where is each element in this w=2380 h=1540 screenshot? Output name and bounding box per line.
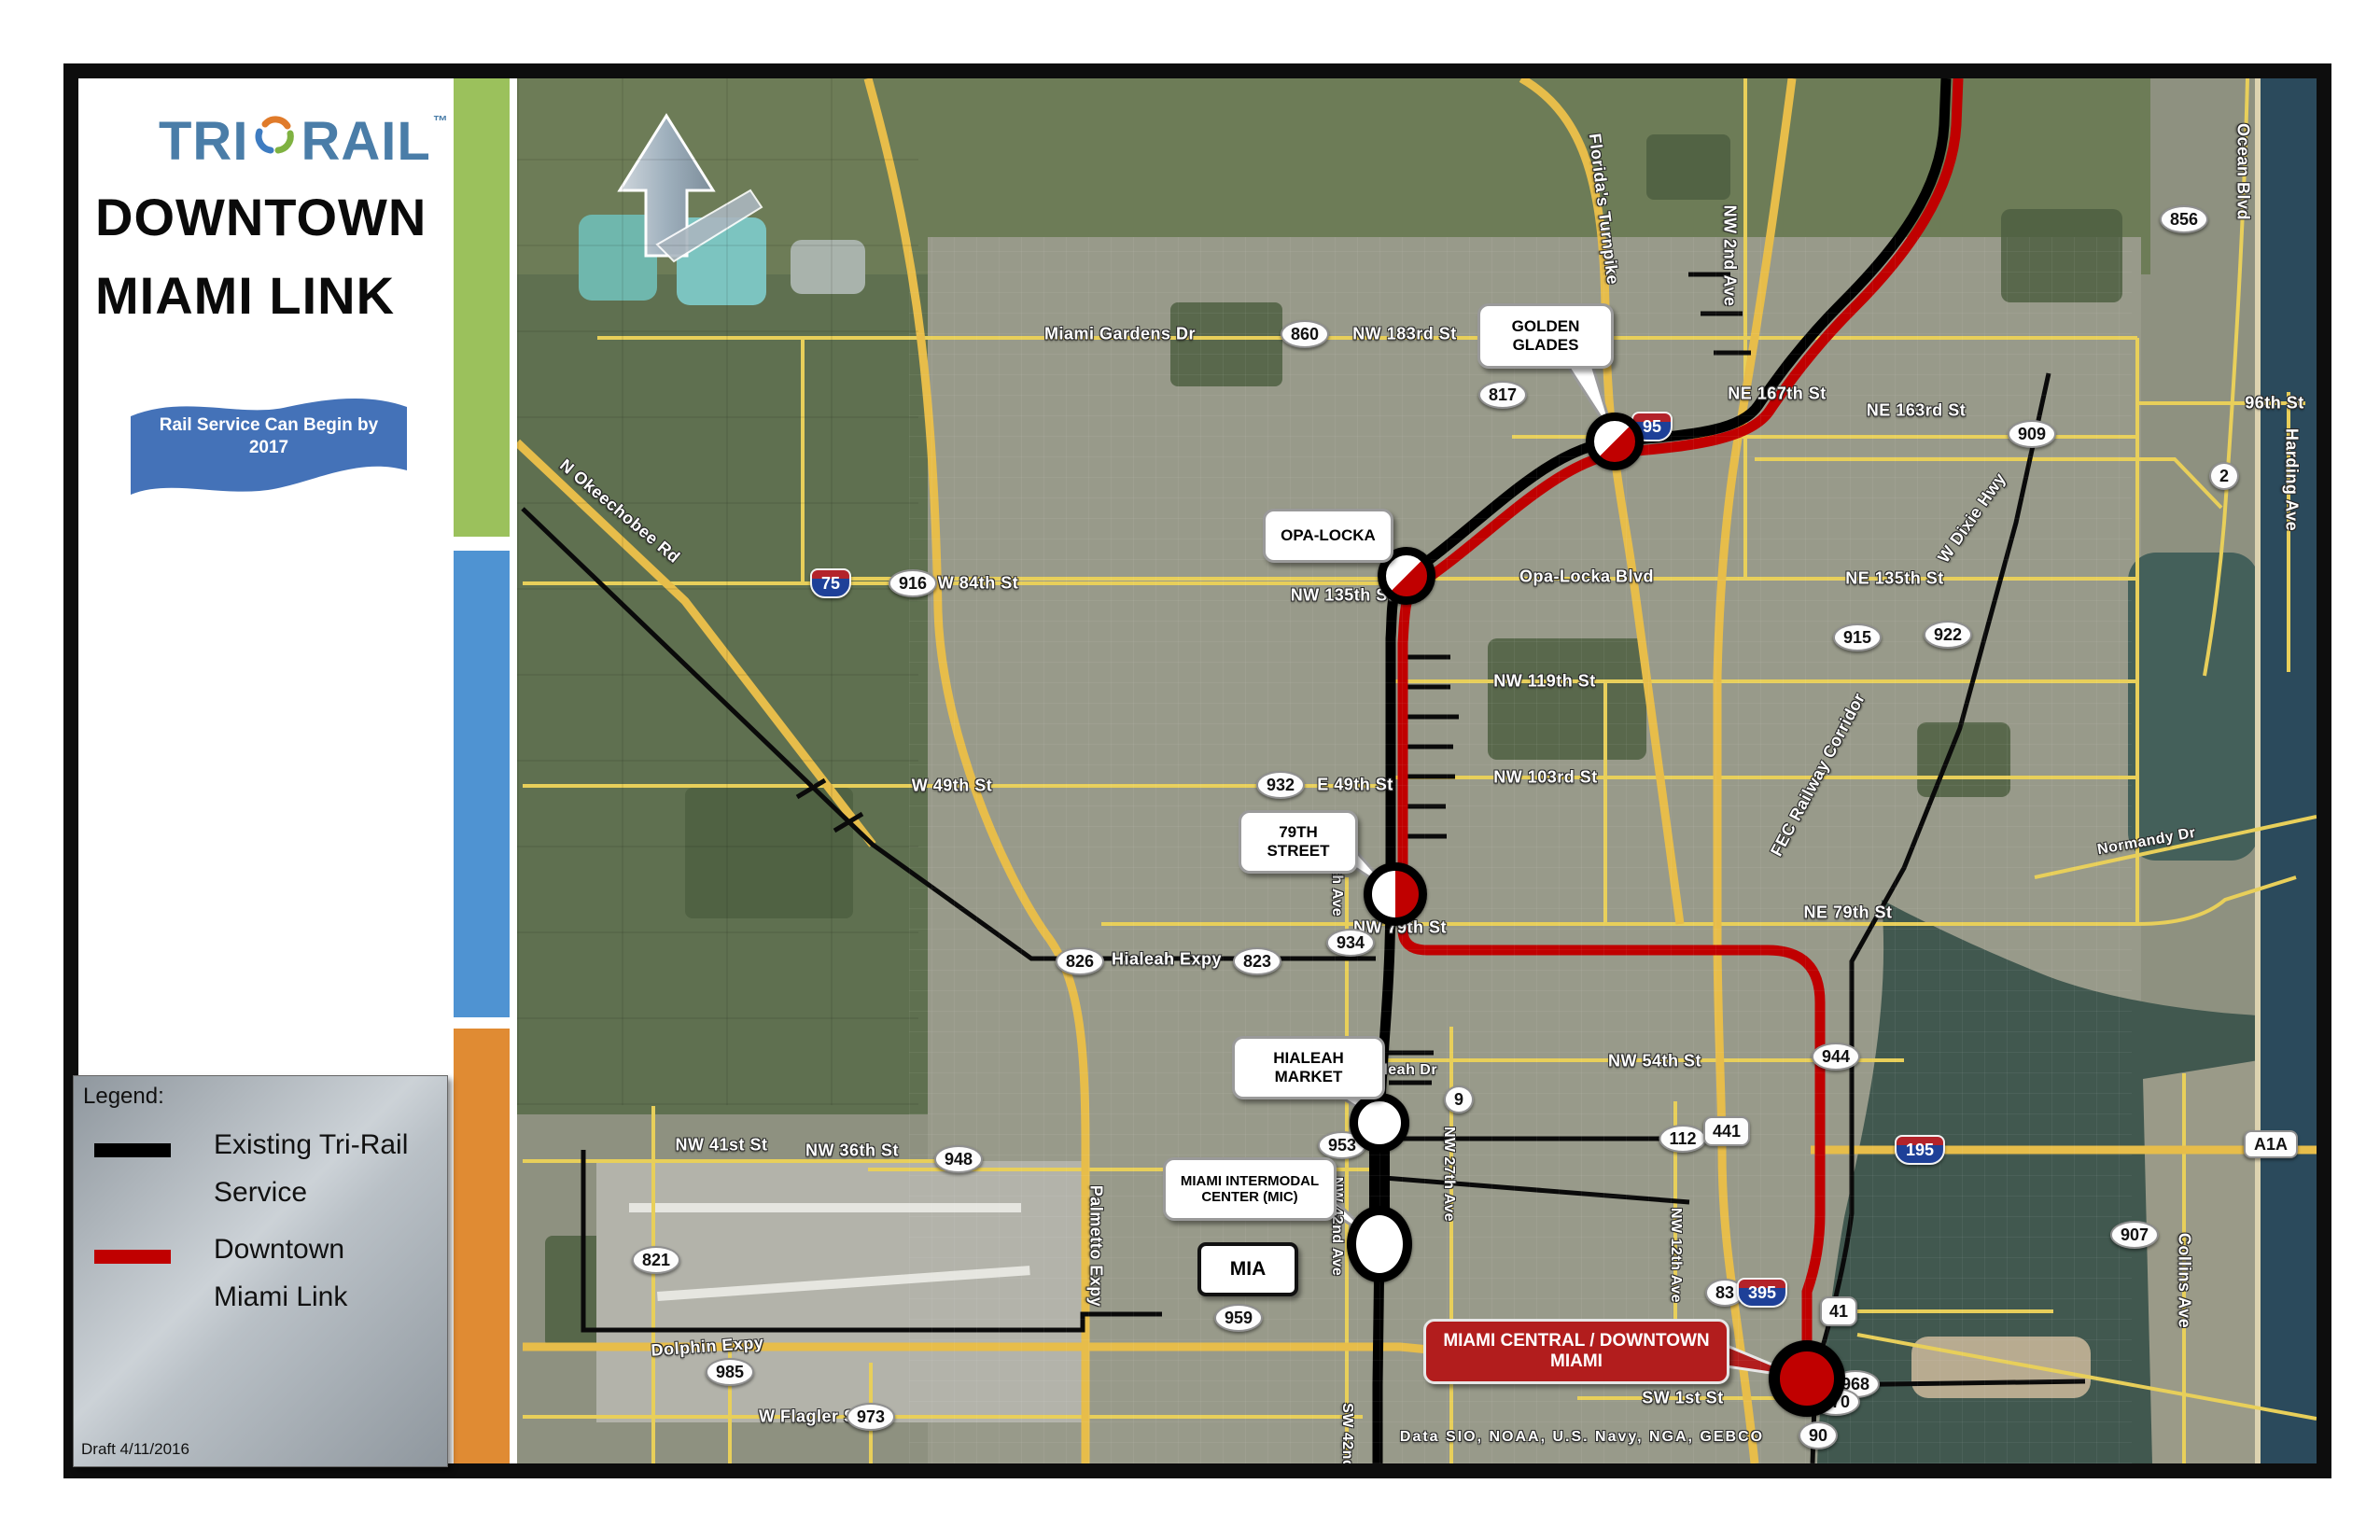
route-shield-932: 932	[1256, 771, 1305, 799]
interstate-shield-195: 195	[1895, 1135, 1945, 1165]
road-label-nw103: NW 103rd St	[1493, 768, 1598, 788]
callout-79th-street: 79TH STREET	[1239, 810, 1358, 874]
route-shield-973: 973	[847, 1403, 895, 1431]
legend-link-line2: Miami Link	[214, 1281, 347, 1312]
callout-mic: MIAMI INTERMODAL CENTER (MIC)	[1163, 1157, 1337, 1221]
road-label-ocean-blvd: Ocean Blvd	[2233, 123, 2253, 220]
legend-swatch-link	[94, 1250, 171, 1264]
station-miami-central	[1769, 1340, 1845, 1417]
tri-rail-arrows-icon	[250, 110, 299, 173]
interstate-shield-75: 75	[810, 568, 851, 598]
legend-existing-line2: Service	[214, 1177, 307, 1208]
airport-area	[596, 1161, 1082, 1422]
route-shield-856: 856	[2160, 205, 2208, 233]
tri-rail-logo: TRI RAIL ™	[159, 110, 449, 173]
route-shield-907: 907	[2110, 1221, 2159, 1249]
legend-label-existing: Existing Tri-Rail Service	[214, 1121, 408, 1216]
strip-blue	[454, 551, 510, 1017]
road-label-miami-gardens: Miami Gardens Dr	[1044, 325, 1196, 344]
route-shield-959: 959	[1214, 1304, 1263, 1332]
banner-line1: Rail Service Can Begin by	[160, 415, 378, 435]
legend-link-line1: Downtown	[214, 1234, 344, 1265]
banner-line2: 2017	[249, 438, 288, 457]
road-label-nw12ave: NW 12th Ave	[1667, 1208, 1684, 1303]
road-label-nw135: NW 135th St	[1291, 586, 1394, 606]
route-shield-9: 9	[1444, 1085, 1474, 1113]
route-shield-922: 922	[1924, 621, 1972, 649]
road-label-sw1: SW 1st St	[1642, 1389, 1724, 1408]
legend: Legend: Existing Tri-Rail Service Downto…	[73, 1075, 448, 1467]
route-shield-915: 915	[1833, 623, 1882, 651]
callout-opa-locka: OPA-LOCKA	[1263, 509, 1393, 563]
station-golden-glades	[1586, 413, 1644, 470]
station-mic	[1347, 1206, 1412, 1282]
route-shield-2: 2	[2209, 462, 2239, 490]
road-label-w84: W 84th St	[938, 574, 1019, 594]
legend-heading: Legend:	[83, 1084, 164, 1110]
road-label-nw183: NW 183rd St	[1352, 325, 1457, 344]
page-title-line1: DOWNTOWN	[95, 187, 427, 247]
road-label-nw2ave: NW 2nd Ave	[1720, 205, 1740, 307]
route-shield-112: 112	[1659, 1125, 1706, 1153]
logo-text-rail: RAIL	[301, 110, 430, 173]
route-shield-948: 948	[934, 1145, 983, 1173]
road-label-nw54: NW 54th St	[1608, 1052, 1701, 1071]
legend-existing-line1: Existing Tri-Rail	[214, 1129, 408, 1160]
road-label-nw36: NW 36th St	[805, 1141, 899, 1161]
logo-text-tri: TRI	[159, 110, 248, 173]
strip-orange	[454, 1029, 510, 1463]
map-attribution: Data SIO, NOAA, U.S. Navy, NGA, GEBCO	[1400, 1429, 1764, 1446]
interstate-shield-395: 395	[1737, 1278, 1787, 1308]
legend-label-link: Downtown Miami Link	[214, 1225, 347, 1321]
route-shield-985: 985	[706, 1358, 754, 1386]
route-shield-909: 909	[2008, 420, 2056, 448]
route-shield-826: 826	[1056, 947, 1104, 975]
ocean	[2261, 78, 2317, 1463]
road-label-ne79: NE 79th St	[1803, 903, 1892, 923]
road-label-nw41: NW 41st St	[675, 1136, 767, 1155]
route-shield-41: 41	[1820, 1296, 1857, 1326]
legend-swatch-existing	[94, 1143, 171, 1157]
route-shield-a1a: A1A	[2244, 1130, 2298, 1158]
miami-beach-strip	[2143, 1060, 2259, 1463]
page-title-line2: MIAMI LINK	[95, 265, 395, 326]
callout-miami-central: MIAMI CENTRAL / DOWNTOWN MIAMI	[1423, 1319, 1729, 1384]
road-label-nw119: NW 119th St	[1493, 672, 1596, 692]
road-label-e49: E 49th St	[1317, 776, 1393, 795]
route-shield-934: 934	[1326, 929, 1375, 957]
route-shield-944: 944	[1812, 1043, 1860, 1071]
port-island	[1911, 1337, 2091, 1398]
road-label-ne135: NE 135th St	[1845, 569, 1944, 589]
route-shield-90: 90	[1799, 1421, 1838, 1449]
satellite-map: Miami Gardens Dr NW 183rd St NE 167th St…	[517, 78, 2317, 1463]
strip-green	[454, 78, 510, 537]
route-shield-441: 441	[1703, 1116, 1750, 1146]
route-shield-823: 823	[1233, 947, 1281, 975]
station-hialeah-market	[1350, 1093, 1409, 1153]
road-label-hialeah-expy: Hialeah Expy	[1112, 950, 1222, 970]
route-shield-821: 821	[632, 1246, 680, 1274]
road-label-ne167: NE 167th St	[1728, 385, 1827, 404]
route-shield-860: 860	[1281, 320, 1329, 348]
map-graphics	[517, 78, 2317, 1463]
service-banner: Rail Service Can Begin by 2017	[129, 390, 409, 502]
road-label-96th: 96th St	[2245, 394, 2304, 413]
callout-hialeah-market: HIALEAH MARKET	[1232, 1036, 1385, 1099]
banner-text: Rail Service Can Begin by 2017	[138, 414, 399, 459]
route-shield-916: 916	[889, 569, 937, 597]
road-label-ne163: NE 163rd St	[1867, 401, 1967, 421]
road-label-harding: Harding Ave	[2282, 428, 2302, 531]
callout-golden-glades: GOLDEN GLADES	[1477, 303, 1614, 369]
road-label-w49: W 49th St	[912, 777, 993, 796]
road-label-opalocka-blvd: Opa-Locka Blvd	[1519, 567, 1654, 587]
route-shield-817: 817	[1478, 381, 1527, 409]
logo-trademark: ™	[433, 114, 449, 131]
road-label-palmetto: Palmetto Expy	[1086, 1185, 1106, 1308]
draft-date: Draft 4/11/2016	[81, 1440, 189, 1459]
station-79th-street	[1364, 862, 1427, 926]
road-label-sw42: SW 42nd Ave	[1338, 1403, 1355, 1463]
road-label-nw27ave: NW 27th Ave	[1440, 1127, 1457, 1222]
callout-mia: MIA	[1197, 1242, 1298, 1296]
page: TRI RAIL ™ DOWNTOWN MIAMI LINK Rail Serv…	[0, 0, 2380, 1540]
road-label-collins: Collins Ave	[2175, 1233, 2194, 1328]
